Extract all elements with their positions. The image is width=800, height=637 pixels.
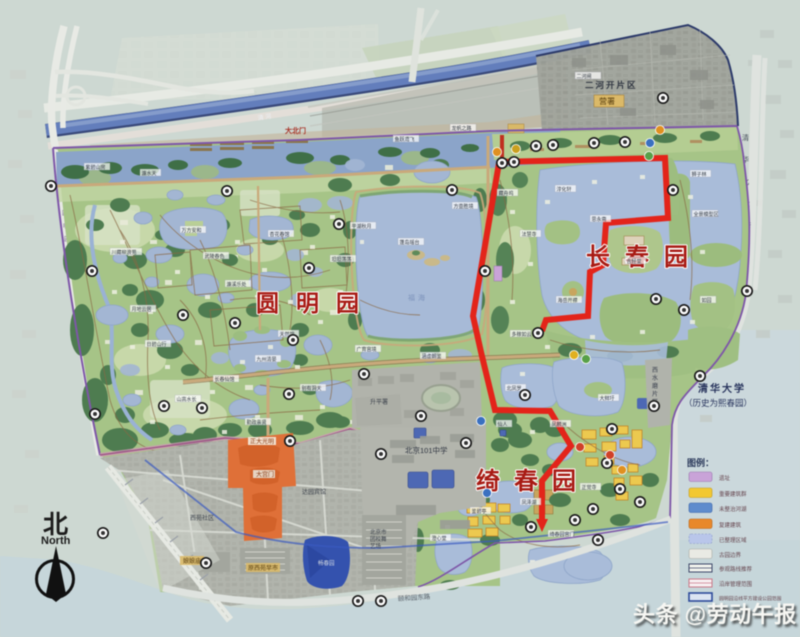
svg-text:达园宾馆: 达园宾馆: [302, 488, 326, 496]
svg-text:杏花春馆: 杏花春馆: [270, 231, 290, 238]
svg-text:畅春园: 畅春园: [318, 559, 335, 567]
svg-text:圆明园: 圆明园: [256, 290, 376, 316]
svg-text:参观路线推荐: 参观路线推荐: [719, 565, 753, 573]
svg-text:涵虚朗鉴: 涵虚朗鉴: [422, 353, 442, 360]
svg-text:濂溪乐处: 濂溪乐处: [227, 281, 247, 288]
svg-text:全景模型区: 全景模型区: [694, 211, 719, 218]
svg-text:濂水天: 濂水天: [142, 170, 157, 177]
svg-text:水: 水: [652, 374, 658, 382]
svg-text:月地云居: 月地云居: [132, 306, 152, 313]
svg-text:绮春园: 绮春园: [476, 467, 590, 495]
svg-text:武陵春色: 武陵春色: [205, 253, 225, 260]
svg-text:大鲜圩: 大鲜圩: [600, 395, 615, 402]
svg-text:广育宫境: 广育宫境: [357, 346, 377, 353]
svg-text:正觉寺: 正觉寺: [582, 484, 597, 491]
svg-text:已整理区域: 已整理区域: [719, 536, 747, 544]
svg-text:磨: 磨: [652, 382, 658, 390]
svg-text:思永斋: 思永斋: [592, 216, 607, 223]
svg-text:North: North: [41, 535, 71, 547]
svg-text:九州清晏: 九州清晏: [257, 356, 277, 363]
svg-text:狮子林: 狮子林: [692, 171, 707, 178]
svg-text:川藏柳浪苑: 川藏柳浪苑: [112, 249, 137, 256]
svg-text:清华大学: 清华大学: [698, 382, 746, 395]
svg-text:仙人: 仙人: [498, 421, 508, 428]
svg-text:正大光明: 正大光明: [250, 438, 274, 446]
svg-text:娘娘庙: 娘娘庙: [183, 557, 201, 565]
svg-text:龙帆之路: 龙帆之路: [452, 125, 472, 132]
svg-text:大宫门: 大宫门: [256, 471, 274, 479]
svg-text:如园: 如园: [702, 297, 712, 304]
svg-text:平湖秋月: 平湖秋月: [352, 223, 372, 230]
svg-text:万方安和: 万方安和: [182, 227, 202, 234]
svg-text:大北门: 大北门: [285, 126, 306, 135]
svg-text:古园边界: 古园边界: [719, 551, 742, 559]
svg-text:沿岸管理范围: 沿岸管理范围: [719, 580, 753, 588]
svg-text:鉴碧亭: 鉴碧亭: [472, 508, 487, 515]
svg-text:片: 片: [652, 390, 658, 398]
svg-text:绮春园宫门: 绮春园宫门: [550, 531, 575, 538]
svg-text:未整治河湖: 未整治河湖: [719, 505, 747, 513]
svg-text:团校舞: 团校舞: [370, 535, 387, 543]
svg-text:重要建筑群: 重要建筑群: [719, 490, 747, 498]
svg-text:升平署: 升平署: [370, 398, 388, 406]
svg-text:西苑社区: 西苑社区: [190, 514, 214, 522]
svg-text:海岳开襟: 海岳开襟: [558, 297, 578, 304]
svg-text:日碧山行: 日碧山行: [147, 341, 167, 348]
svg-text:原西苑早市: 原西苑早市: [248, 564, 278, 572]
svg-text:北凤罗: 北凤罗: [507, 385, 522, 392]
svg-text:凤麟洲: 凤麟洲: [552, 421, 567, 428]
svg-text:长春仙馆: 长春仙馆: [215, 376, 235, 383]
svg-text:头条 @劳动午报: 头条 @劳动午报: [633, 602, 797, 627]
svg-text:坦坦荡荡: 坦坦荡荡: [332, 256, 352, 263]
svg-text:凤泽湖: 凤泽湖: [522, 499, 537, 506]
svg-text:别有洞天: 别有洞天: [302, 385, 322, 392]
svg-text:北京市: 北京市: [370, 528, 387, 536]
svg-text:营署: 营署: [599, 96, 615, 106]
svg-text:艺场: 艺场: [370, 542, 382, 550]
svg-text:福海: 福海: [408, 293, 428, 302]
svg-text:澄心堂: 澄心堂: [432, 535, 447, 542]
svg-text:（历史为熙春园）: （历史为熙春园）: [684, 398, 752, 408]
svg-text:含经堂: 含经堂: [627, 258, 642, 265]
svg-text:复建建筑: 复建建筑: [719, 521, 742, 529]
svg-text:清: 清: [742, 133, 749, 142]
svg-text:遗址: 遗址: [719, 474, 731, 482]
svg-text:淳化轩: 淳化轩: [557, 186, 572, 193]
svg-text:法慧寺: 法慧寺: [522, 231, 537, 238]
svg-text:二河闸: 二河闸: [577, 73, 592, 80]
svg-text:紫碧山房: 紫碧山房: [86, 164, 106, 171]
svg-text:藏舟坞: 藏舟坞: [499, 190, 514, 197]
svg-text:蓬岛瑶台: 蓬岛瑶台: [400, 239, 420, 246]
svg-text:图例：: 图例：: [687, 457, 714, 468]
svg-text:圆明园沿线平方建设公园范围: 圆明园沿线平方建设公园范围: [719, 595, 782, 602]
svg-text:二河开片区: 二河开片区: [585, 80, 638, 90]
svg-text:勤政亲贤: 勤政亲贤: [247, 419, 267, 426]
svg-text:山高水长: 山高水长: [177, 396, 197, 403]
svg-text:多稼如云: 多稼如云: [512, 331, 532, 338]
svg-text:鱼跃鸢飞: 鱼跃鸢飞: [395, 136, 415, 143]
svg-text:西: 西: [652, 367, 658, 374]
svg-text:方壶胜境: 方壶胜境: [454, 203, 474, 210]
svg-text:北京101中学: 北京101中学: [405, 445, 448, 455]
